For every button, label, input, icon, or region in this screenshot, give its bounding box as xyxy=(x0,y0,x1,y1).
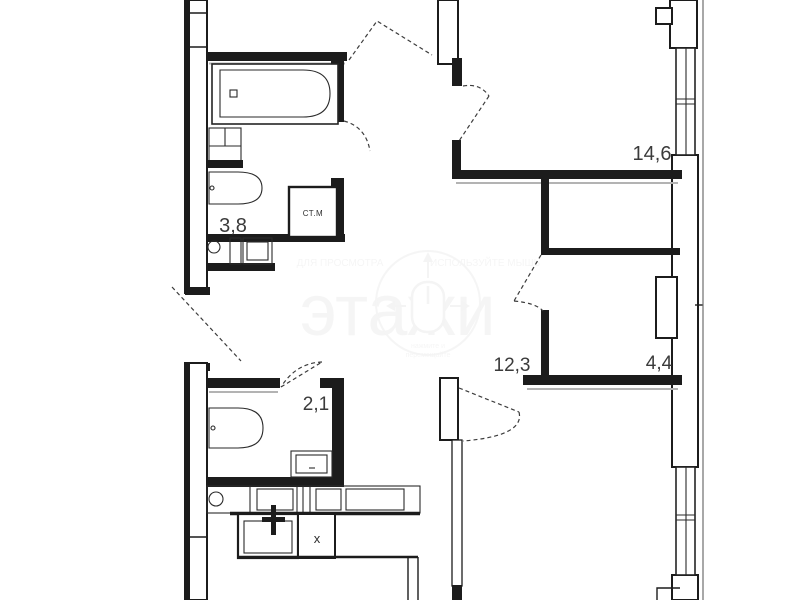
watermark-text-left: ДЛЯ ПРОСМОТРА xyxy=(297,258,384,269)
floor-plan-canvas: ДЛЯ ПРОСМОТРА ИСПОЛЬЗУЙТЕ МЫШЬ этажи наж… xyxy=(0,0,800,600)
sink-small xyxy=(291,451,332,477)
bathroom2-right-wall xyxy=(332,378,344,485)
entrance-door-leaf xyxy=(172,287,241,361)
area-label-storage: 4,4 xyxy=(646,353,673,374)
bathroom-top-wall xyxy=(207,52,347,61)
area-label-living-room: 14,6 xyxy=(633,143,672,165)
watermark-hint-1: нажмите и xyxy=(411,343,445,350)
area-label-bathroom-bottom: 2,1 xyxy=(303,394,329,415)
bathtub-small xyxy=(209,408,263,448)
living-room-door-swing xyxy=(459,85,489,141)
bathroom2-top-wall-left xyxy=(207,378,280,388)
door-stub-top xyxy=(452,58,462,86)
entry-double-door-swing xyxy=(349,21,432,60)
kitchen-counter xyxy=(207,486,420,514)
watermark-hint-2: перемещайте xyxy=(406,351,451,359)
washing-machine-label: СТ.М xyxy=(303,209,323,218)
kitchen-sink xyxy=(238,505,298,558)
washing-machine: СТ.М xyxy=(289,187,337,237)
bathroom-top-door-swing xyxy=(344,121,370,151)
kitchen-partition-end xyxy=(452,585,462,600)
entry-column xyxy=(438,0,458,64)
bathtub-large xyxy=(212,64,338,124)
right-wall-step xyxy=(656,8,672,24)
stove-label: x xyxy=(314,531,321,546)
kitchen-partition xyxy=(452,440,462,586)
window-right-lower xyxy=(676,467,695,575)
washbasin xyxy=(209,172,262,204)
pedestal-sink xyxy=(207,128,243,168)
divider-wall-upper xyxy=(541,179,549,253)
bathroom-bottom-fixtures xyxy=(209,408,332,477)
area-label-hallway: 12,3 xyxy=(494,355,531,376)
stove: x xyxy=(298,514,335,558)
hallway-bottom-wall xyxy=(523,375,682,385)
bathroom2-door-swing xyxy=(281,362,322,387)
living-room-bottom-wall xyxy=(452,170,682,179)
watermark: ДЛЯ ПРОСМОТРА ИСПОЛЬЗУЙТЕ МЫШЬ этажи наж… xyxy=(297,251,541,359)
floor-plan: ДЛЯ ПРОСМОТРА ИСПОЛЬЗУЙТЕ МЫШЬ этажи наж… xyxy=(0,0,800,600)
window-right-upper xyxy=(676,48,695,155)
kitchen-fixtures: x xyxy=(207,486,420,600)
storage-niche xyxy=(656,277,677,338)
watermark-text-right: ИСПОЛЬЗУЙТЕ МЫШЬ xyxy=(430,256,541,269)
right-wall-top xyxy=(670,0,697,48)
divider-wall-lower xyxy=(541,310,549,378)
kitchen-door-pillar xyxy=(440,378,458,440)
area-label-bathroom-top: 3,8 xyxy=(219,215,247,237)
storage-top-wall xyxy=(541,248,680,255)
entrance-jamb-top xyxy=(185,287,210,295)
kitchen-door-swing xyxy=(459,388,520,441)
